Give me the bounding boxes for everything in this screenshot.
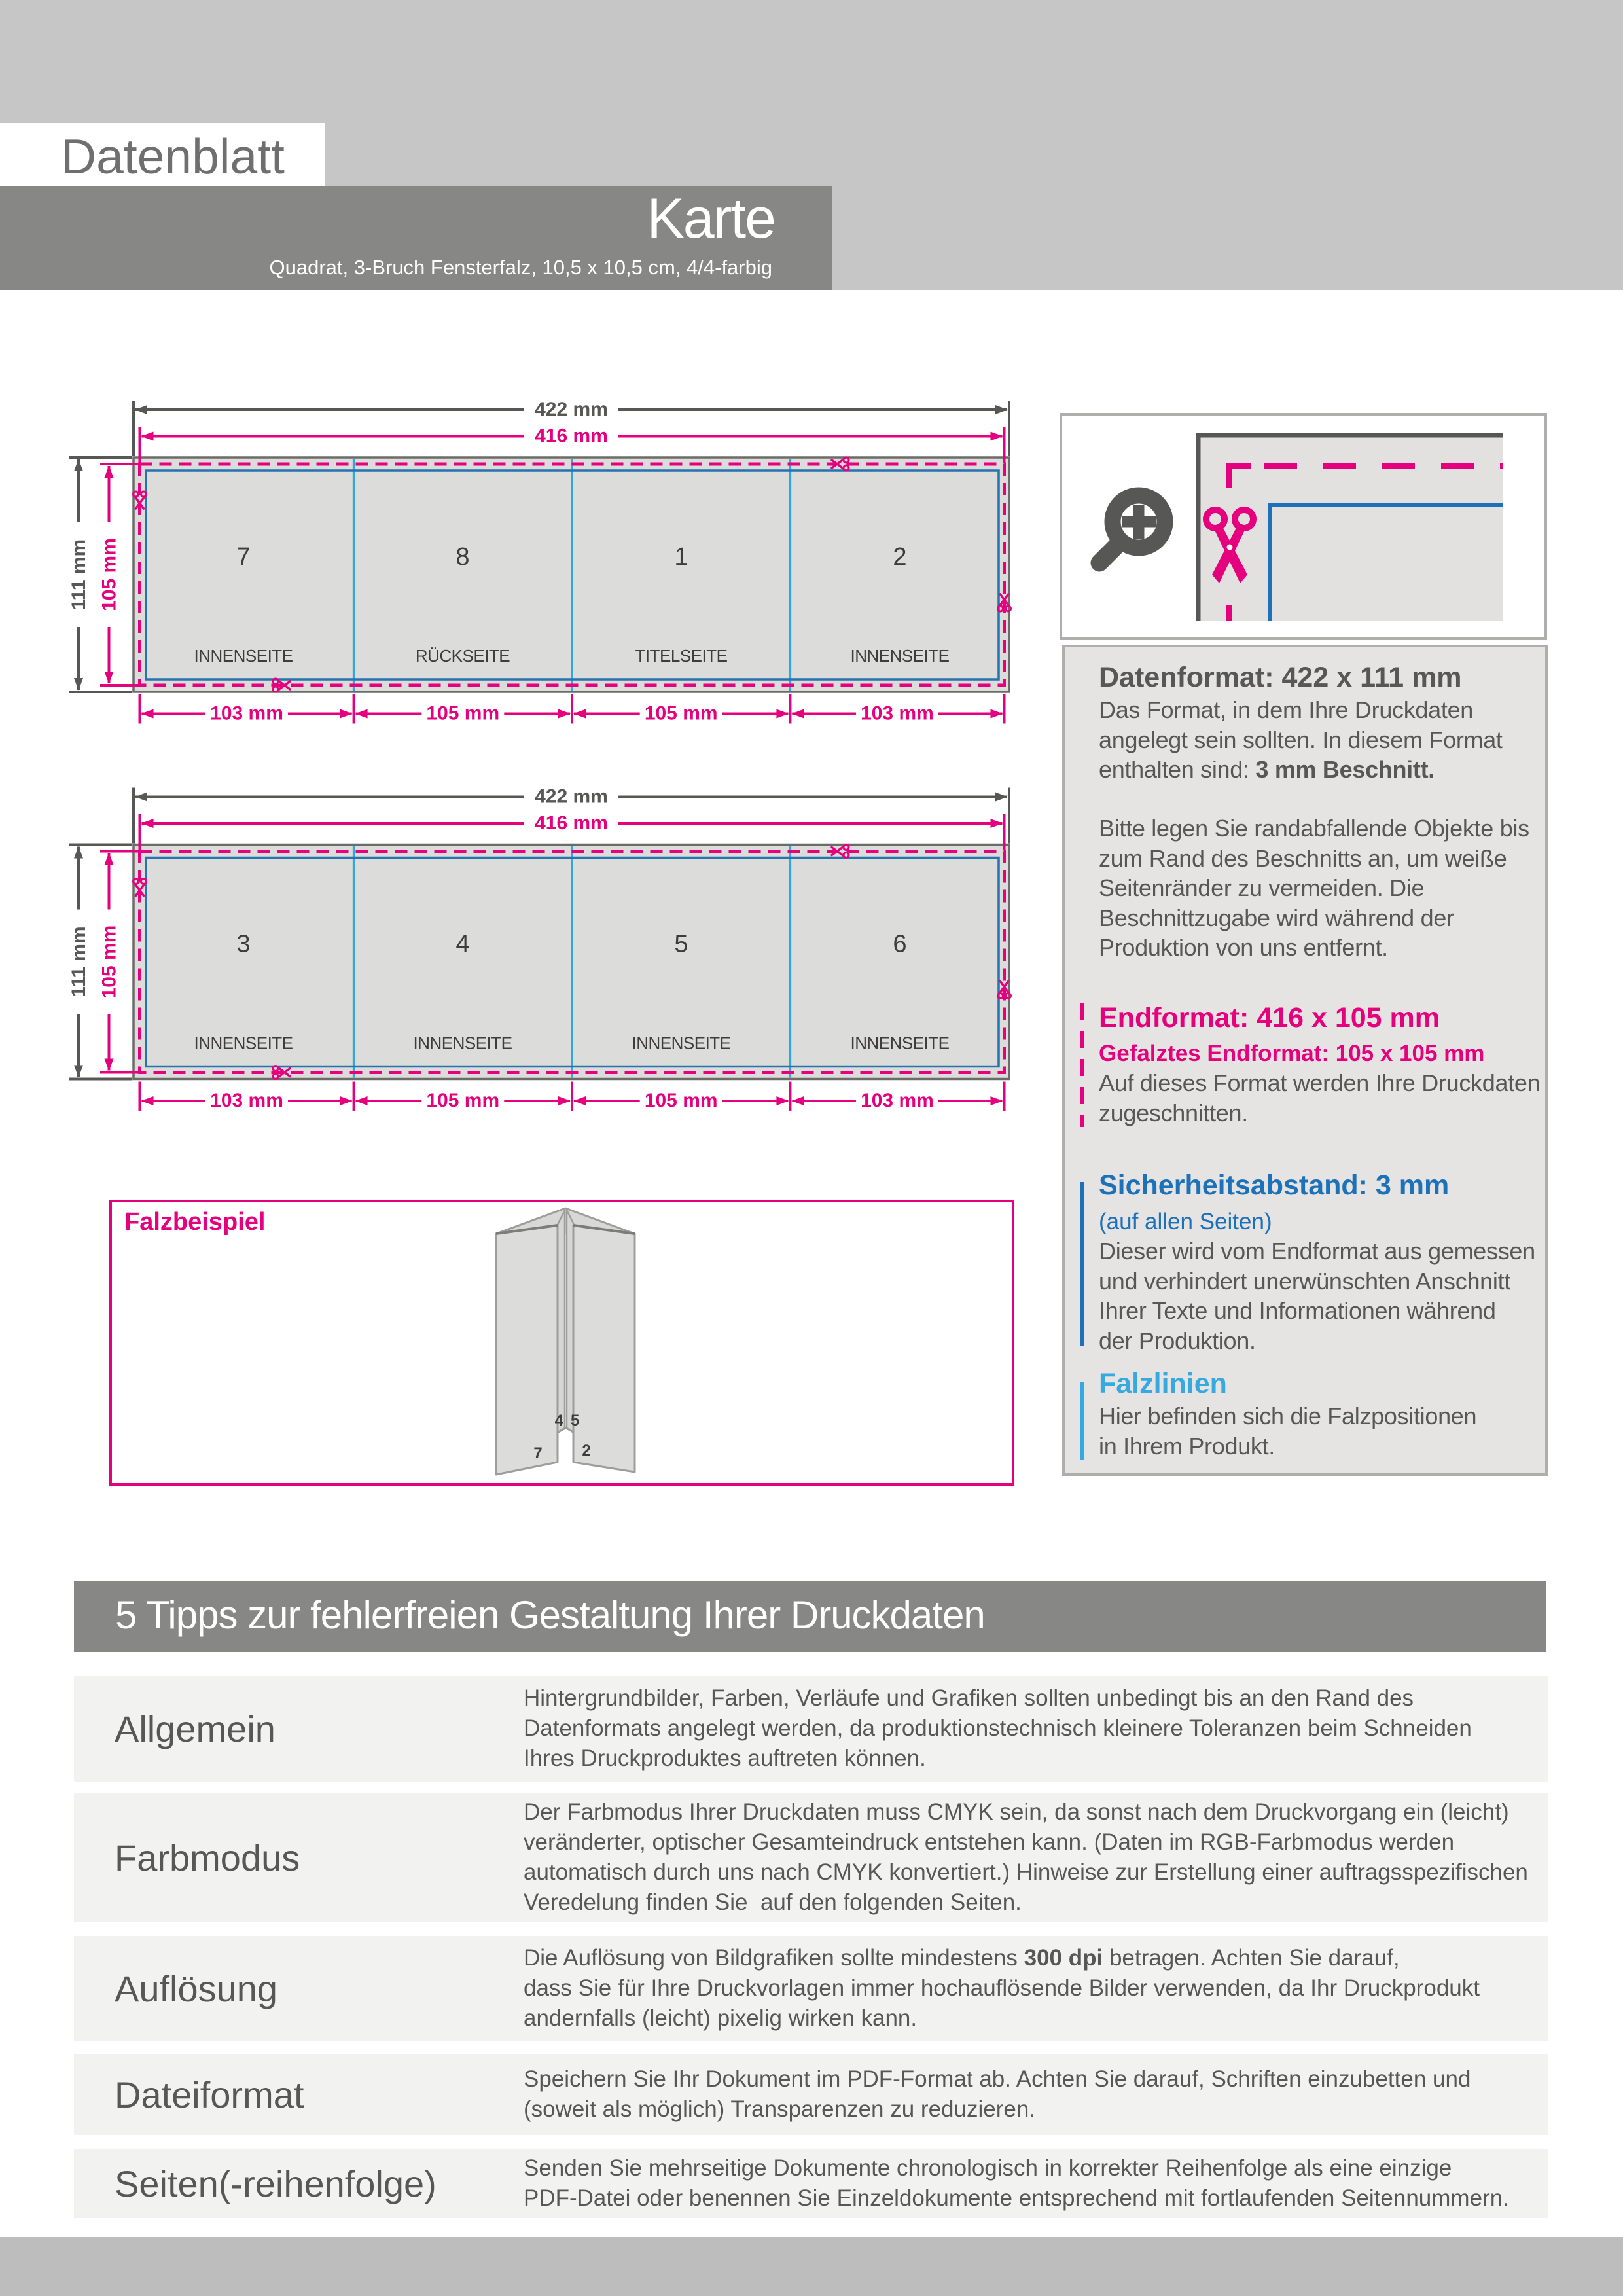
svg-text:2: 2 bbox=[893, 543, 906, 571]
svg-text:103 mm: 103 mm bbox=[210, 1090, 283, 1111]
svg-text:422 mm: 422 mm bbox=[535, 399, 608, 420]
svg-text:6: 6 bbox=[893, 931, 906, 958]
svg-text:416 mm: 416 mm bbox=[535, 812, 608, 834]
svg-text:416 mm: 416 mm bbox=[535, 425, 608, 447]
svg-text:111 mm: 111 mm bbox=[68, 926, 90, 997]
svg-text:105 mm: 105 mm bbox=[99, 538, 120, 611]
svg-text:105 mm: 105 mm bbox=[99, 925, 120, 999]
svg-text:3: 3 bbox=[236, 931, 250, 958]
svg-text:105 mm: 105 mm bbox=[645, 703, 718, 725]
svg-text:105 mm: 105 mm bbox=[645, 1090, 718, 1111]
svg-text:INNENSEITE: INNENSEITE bbox=[632, 1033, 730, 1053]
svg-text:RÜCKSEITE: RÜCKSEITE bbox=[416, 646, 510, 666]
svg-text:1: 1 bbox=[674, 543, 688, 571]
svg-text:INNENSEITE: INNENSEITE bbox=[413, 1033, 512, 1053]
svg-text:422 mm: 422 mm bbox=[535, 786, 608, 808]
svg-text:103 mm: 103 mm bbox=[861, 1090, 934, 1111]
svg-text:TITELSEITE: TITELSEITE bbox=[635, 646, 728, 666]
svg-text:INNENSEITE: INNENSEITE bbox=[850, 646, 949, 666]
svg-text:103 mm: 103 mm bbox=[210, 703, 283, 725]
svg-text:7: 7 bbox=[236, 543, 250, 571]
svg-text:105 mm: 105 mm bbox=[426, 1090, 499, 1111]
svg-text:111 mm: 111 mm bbox=[68, 539, 90, 610]
svg-text:5: 5 bbox=[674, 931, 688, 958]
svg-text:INNENSEITE: INNENSEITE bbox=[194, 1033, 293, 1053]
svg-text:8: 8 bbox=[455, 543, 469, 571]
svg-text:4: 4 bbox=[455, 931, 469, 958]
svg-text:103 mm: 103 mm bbox=[861, 703, 934, 725]
svg-text:INNENSEITE: INNENSEITE bbox=[850, 1033, 949, 1053]
svg-text:105 mm: 105 mm bbox=[426, 703, 499, 725]
svg-text:INNENSEITE: INNENSEITE bbox=[194, 646, 293, 666]
